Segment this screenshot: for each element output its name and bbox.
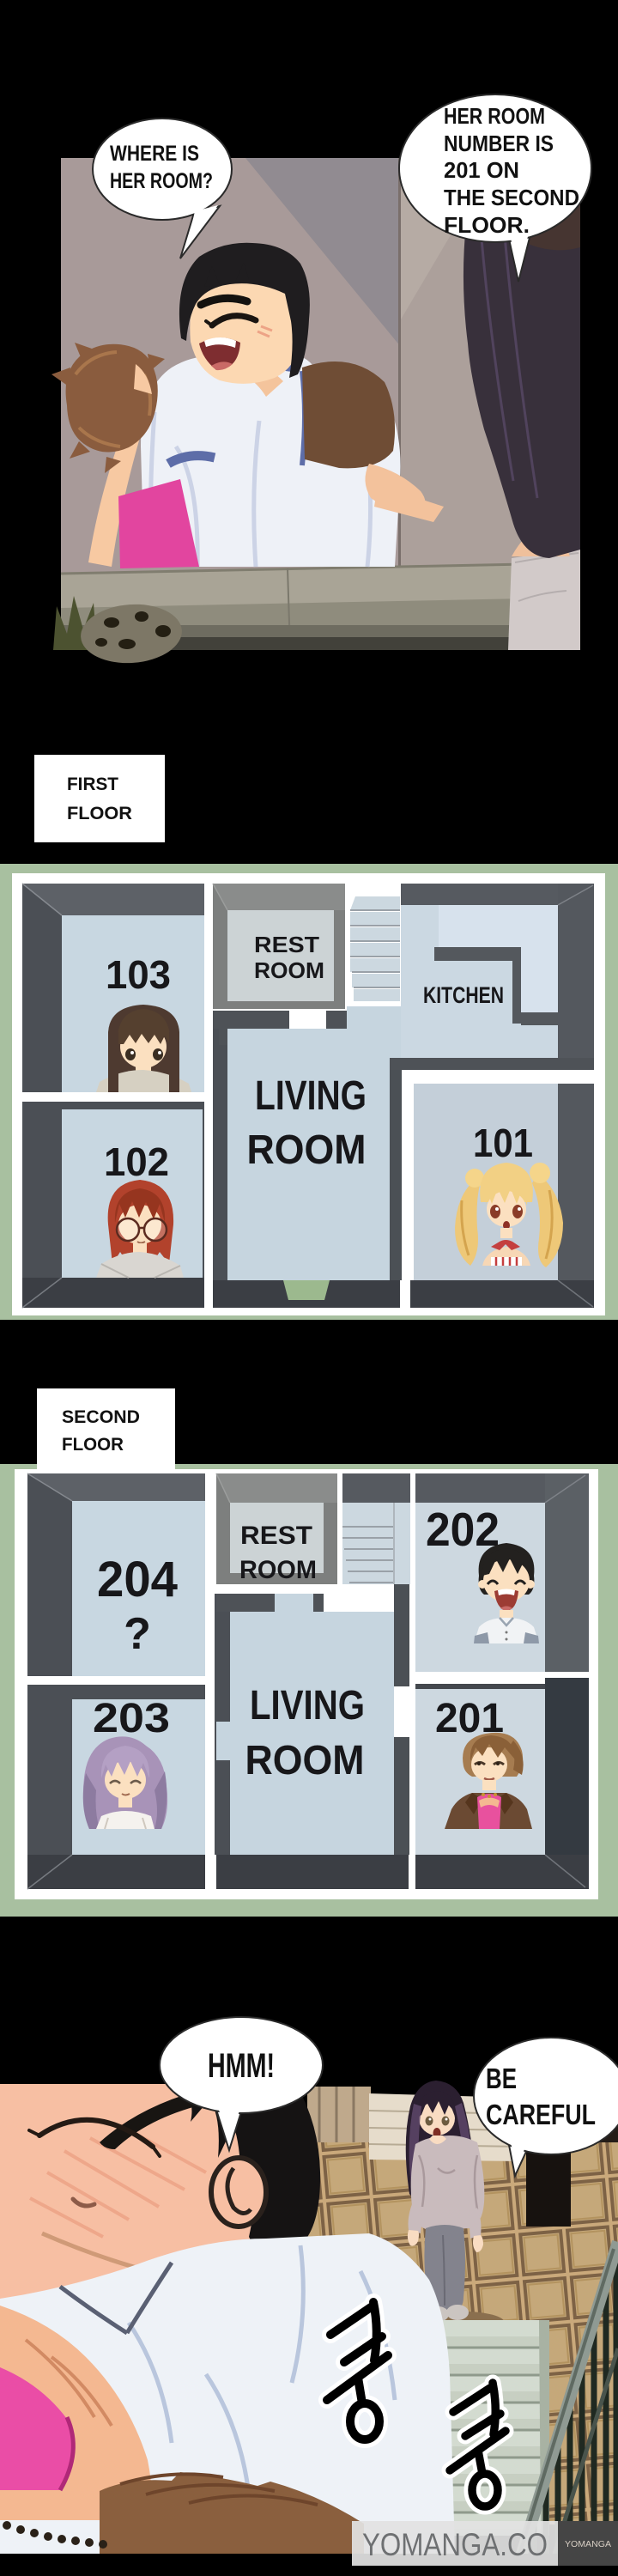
svg-text:REST: REST [254, 932, 319, 957]
svg-text:ROOM: ROOM [254, 957, 324, 983]
svg-text:YOMANGA: YOMANGA [565, 2540, 611, 2549]
svg-text:ROOM: ROOM [247, 1127, 367, 1173]
svg-text:SECOND: SECOND [62, 1407, 140, 1427]
svg-text:LIVING: LIVING [255, 1073, 367, 1119]
svg-text:204: 204 [97, 1552, 178, 1607]
svg-text:THE SECOND: THE SECOND [444, 185, 579, 210]
svg-text:KITCHEN: KITCHEN [423, 982, 504, 1008]
svg-text:101: 101 [473, 1121, 533, 1165]
svg-text:?: ? [124, 1609, 151, 1659]
svg-text:HER ROOM?: HER ROOM? [110, 169, 213, 193]
svg-text:YOMANGA.CO: YOMANGA.CO [362, 2527, 548, 2562]
svg-text:CAREFUL: CAREFUL [486, 2099, 596, 2130]
svg-text:REST: REST [240, 1522, 312, 1550]
svg-text:ROOM: ROOM [245, 1738, 365, 1783]
svg-text:103: 103 [106, 952, 171, 997]
svg-text:HER ROOM: HER ROOM [444, 103, 545, 129]
svg-text:FIRST: FIRST [67, 775, 118, 794]
svg-text:FLOOR: FLOOR [67, 804, 132, 823]
svg-text:FLOOR.: FLOOR. [444, 212, 530, 238]
svg-text:FLOOR: FLOOR [62, 1435, 124, 1455]
svg-text:WHERE IS: WHERE IS [110, 142, 199, 166]
svg-text:203: 203 [93, 1696, 170, 1741]
svg-text:102: 102 [104, 1139, 169, 1184]
svg-text:202: 202 [426, 1503, 500, 1556]
svg-text:NUMBER IS: NUMBER IS [444, 131, 554, 156]
svg-text:LIVING: LIVING [250, 1683, 365, 1728]
svg-text:ROOM: ROOM [239, 1556, 317, 1584]
svg-text:BE: BE [486, 2063, 517, 2094]
svg-text:HMM!: HMM! [208, 2047, 275, 2085]
svg-text:201 ON: 201 ON [444, 157, 519, 183]
